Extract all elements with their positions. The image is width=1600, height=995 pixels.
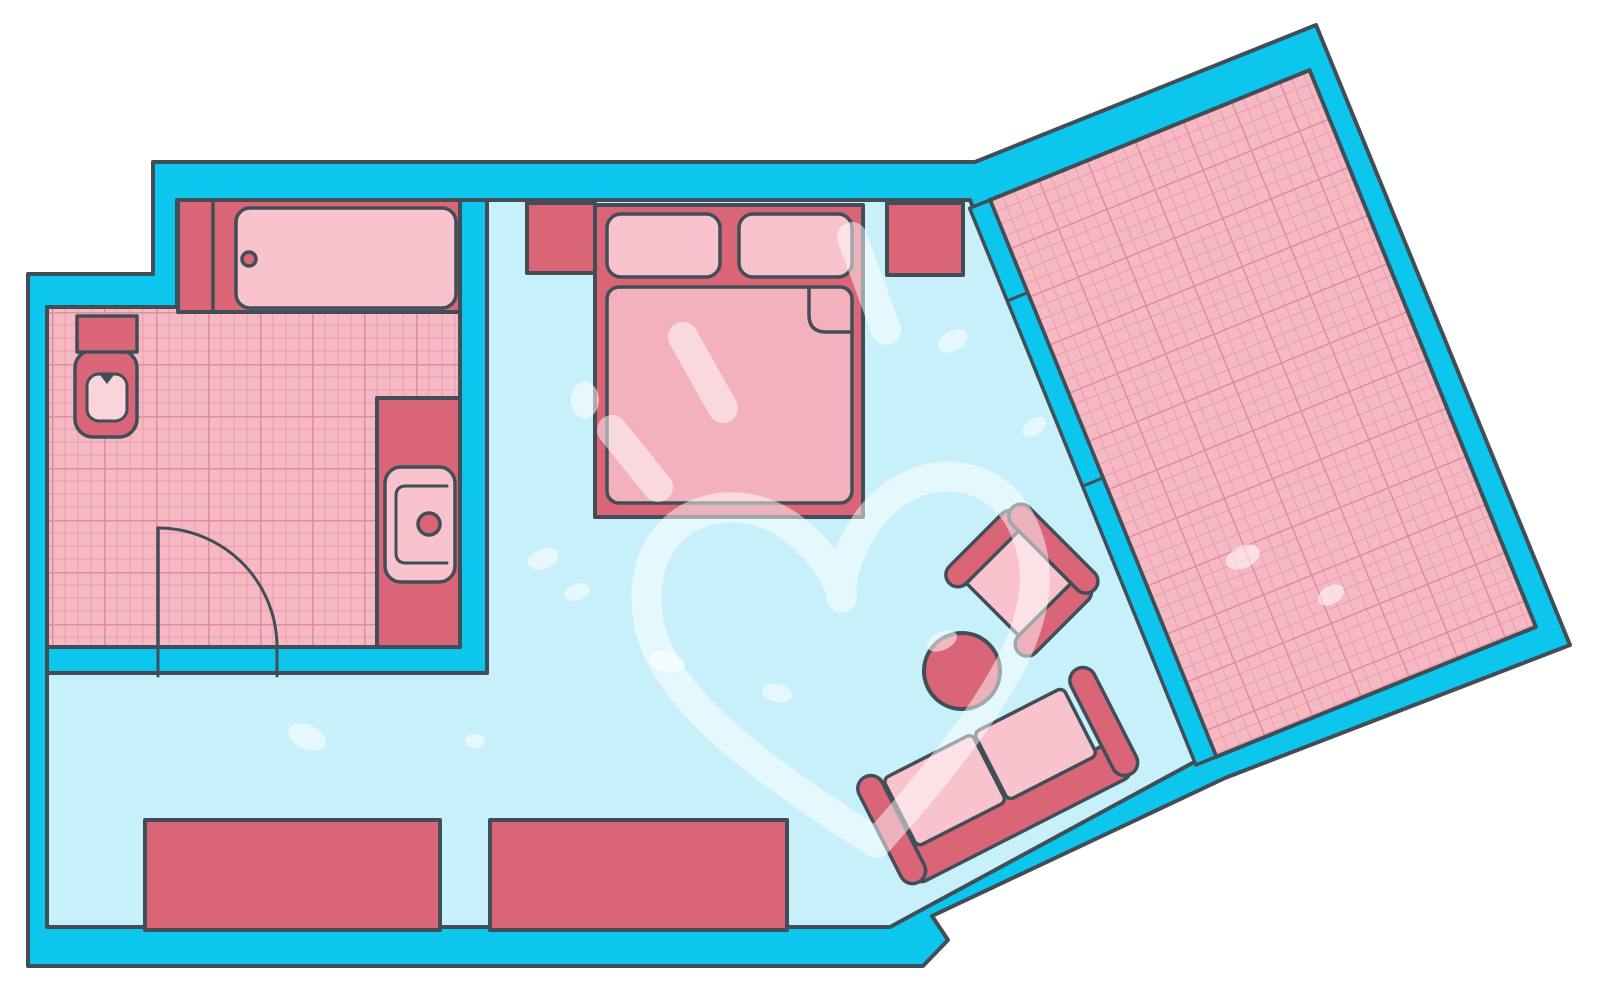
toilet [75,316,137,437]
watermark-dot [571,382,599,418]
bathtub [236,208,456,308]
cabinet-left [145,820,440,930]
pillow-left [607,214,720,277]
toilet-tank [77,316,137,352]
pillow-right [739,214,852,277]
bathtub-drain-icon [242,252,256,266]
floor-plan-canvas [0,0,1600,995]
nightstand-left [527,203,595,273]
floor-plan-page [0,0,1600,995]
nightstand-right [887,203,963,275]
watermark-dot [465,734,485,748]
faucet-icon [418,513,440,535]
washbasin [377,398,460,647]
cabinet-right [490,820,787,930]
